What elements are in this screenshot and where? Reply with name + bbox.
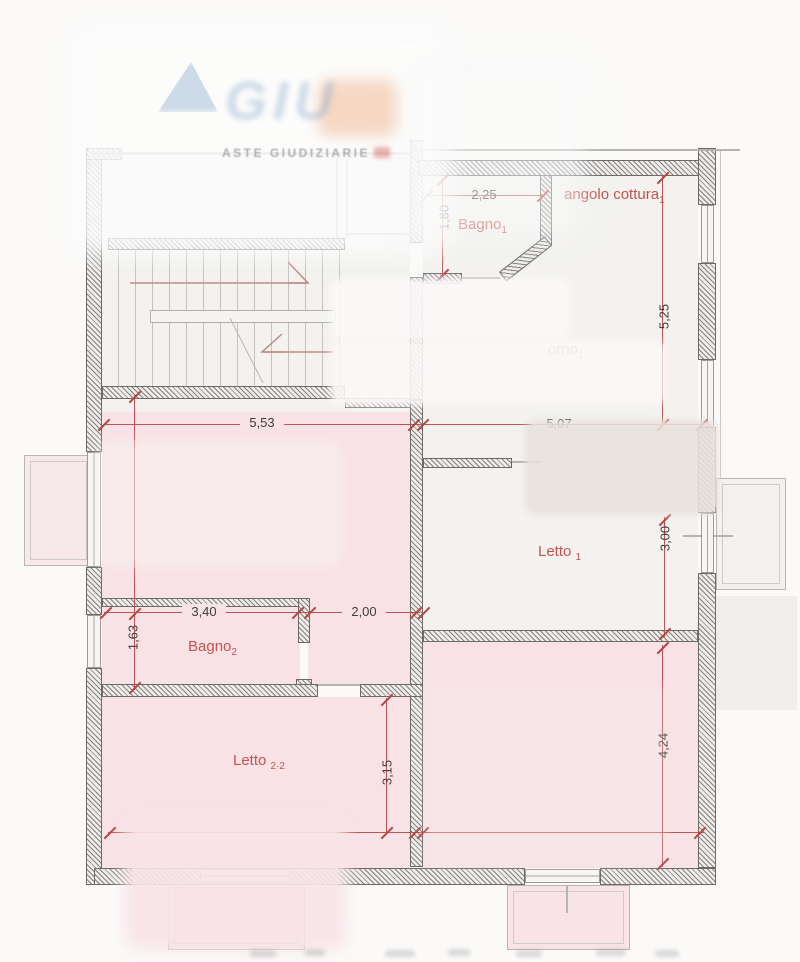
- dim-corridor-width: 2,00: [342, 604, 386, 619]
- room-label-angolo-cottura-sub: 1: [659, 195, 665, 206]
- dim-letto2-depth: 3,15: [380, 753, 395, 793]
- dim-bagno2-depth: 1,63: [126, 618, 141, 658]
- dim-bagno2-width: 3,40: [182, 604, 226, 619]
- balcony-right-inner-line: [722, 484, 780, 584]
- blur-patch-bottom-left: [133, 826, 338, 942]
- watermark-subtitle: ASTE GIUDIZIARIE: [222, 146, 370, 160]
- dim-letto1-depth: 3,00: [658, 519, 673, 559]
- wall-bottom-right: [600, 868, 716, 885]
- balcony-door-left: [87, 452, 101, 567]
- blur-patch-room-br: [430, 690, 660, 860]
- wall-bagno2-jamb: [298, 598, 310, 643]
- room-label-bagno2-sub: 2: [231, 647, 237, 658]
- dim-left-zone-width: 5,53: [240, 415, 284, 430]
- staircase-arrows: [102, 250, 352, 390]
- dim-unit1-right: 5,25: [657, 297, 672, 337]
- window-right-1: [701, 205, 714, 263]
- room-label-letto2-text: Letto: [233, 752, 271, 769]
- room-label-letto1: Letto 1: [538, 543, 581, 563]
- room-label-angolo-cottura: angolo cottura1: [564, 186, 665, 206]
- room-label-letto1-text: Letto: [538, 543, 576, 560]
- door-head-bagno1: [462, 277, 500, 279]
- watermark-red-mark: [374, 147, 390, 158]
- wall-left-mid: [86, 567, 102, 615]
- door-head-letto2: [318, 684, 360, 686]
- room-label-bagno2: Bagno2: [188, 638, 237, 658]
- room-label-letto2: Letto 2·2: [233, 752, 285, 772]
- wall-right-pier1: [698, 263, 716, 360]
- balcony-left: [24, 455, 93, 566]
- room-label-letto2-sub: 2·2: [271, 761, 285, 772]
- wall-letto1-bottom: [423, 630, 698, 642]
- balcony-bottom-right-inner-line: [513, 891, 624, 944]
- faded-footer-mark: [655, 950, 679, 957]
- window-bagno2: [87, 615, 101, 668]
- wall-stair-top: [108, 238, 345, 250]
- room-label-bagno1-sub: 1: [501, 225, 507, 236]
- room-label-angolo-cottura-text: angolo cottura: [564, 186, 659, 203]
- blur-patch-letto1: [528, 423, 716, 512]
- faded-footer-mark: [385, 950, 415, 957]
- faded-footer-mark: [250, 950, 276, 957]
- balcony-door-bottom-right: [525, 869, 600, 883]
- wall-right-lower: [698, 573, 716, 868]
- balcony-bottom-right-door-line: [566, 885, 568, 913]
- wall-spine-lower: [410, 400, 423, 867]
- faded-footer-mark: [516, 950, 542, 957]
- window-letto1: [701, 513, 714, 573]
- faded-footer-mark: [448, 949, 470, 956]
- wall-corridor-notch: [296, 679, 312, 685]
- balcony-left-inner-line: [30, 461, 87, 560]
- floor-plan: 2,25 1,80 5,25 5,53 5,07 3,00 3,40 2,00 …: [0, 0, 800, 962]
- wall-left-lower: [86, 668, 102, 885]
- faded-footer-mark: [596, 949, 626, 956]
- balcony-right: [716, 478, 786, 590]
- right-facade-line: [720, 150, 721, 478]
- blur-patch-soggiorno-1: [334, 282, 566, 338]
- watermark-haze-right: [420, 75, 570, 225]
- room-label-bagno2-text: Bagno: [188, 638, 231, 655]
- watermark-logo-text: GIU: [225, 70, 339, 132]
- balcony-bottom-right: [507, 885, 630, 950]
- faded-footer-mark: [305, 949, 325, 956]
- wall-letto1-top: [423, 458, 512, 468]
- room-label-letto1-sub: 1: [576, 552, 582, 563]
- terrace-shadow-right: [716, 596, 797, 710]
- blur-patch-living-room: [104, 448, 334, 560]
- wall-corner-top-right: [698, 148, 716, 205]
- blur-patch-soggiorno-2: [334, 344, 662, 402]
- window-right-2: [701, 360, 714, 427]
